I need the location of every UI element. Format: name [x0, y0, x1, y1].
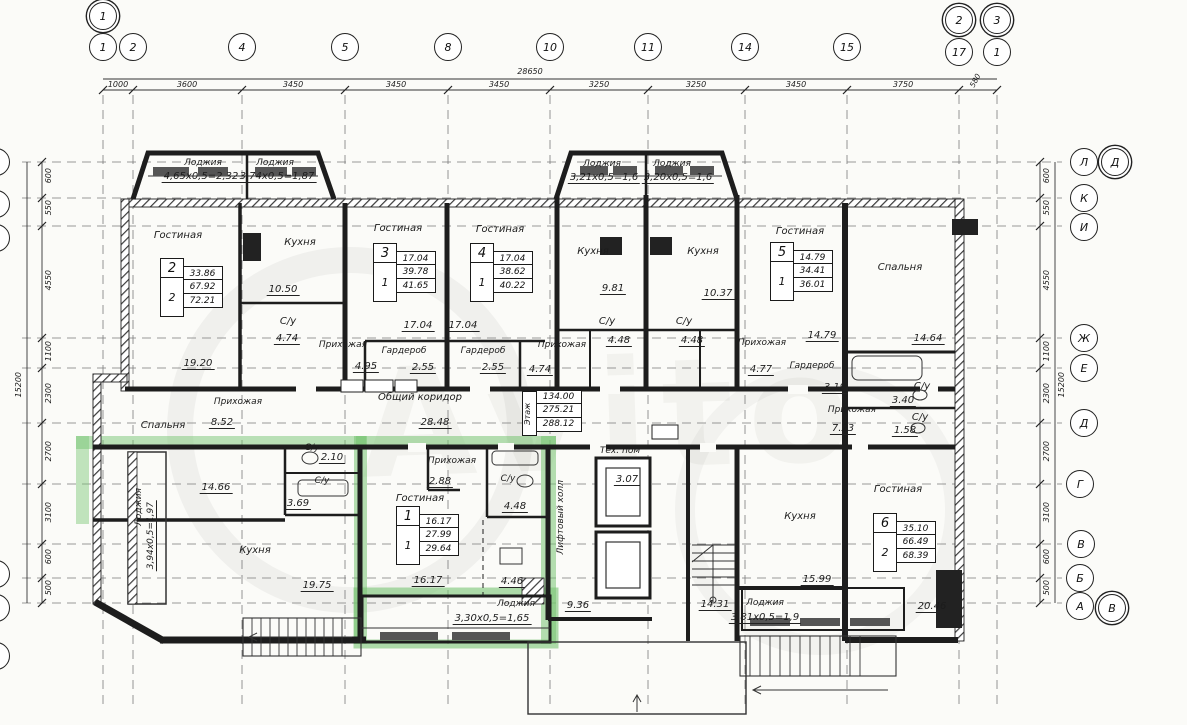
loggia-label: Лоджия — [184, 158, 222, 168]
dim-left: 2700 — [44, 441, 53, 461]
room-area: 14.79 — [806, 330, 839, 342]
axis-bubble: 1 — [983, 38, 1011, 66]
loggia-label: Лоджия — [497, 599, 535, 609]
dim-left: 600 — [44, 168, 53, 183]
room-area: 7.23 — [830, 423, 856, 435]
stamp-apt-number: 1 — [396, 506, 420, 526]
dim-left: 600 — [44, 549, 53, 564]
room-label-living: Гостиная — [374, 223, 422, 234]
room-label-bath: С/у — [501, 474, 516, 484]
loggia-label: Лоджия — [653, 159, 691, 169]
dim-left: 3100 — [44, 502, 53, 522]
loggia-area: 3,21х0,5=1,6 — [568, 172, 640, 184]
dim-right: 4550 — [1042, 270, 1051, 290]
room-label-lift-hall: Лифтовый холл — [556, 480, 566, 555]
room-label-kitchen: Кухня — [239, 545, 271, 556]
room-area: 4.74 — [274, 333, 300, 345]
dim-top-total: 28650 — [517, 67, 542, 76]
room-area: 3.69 — [285, 498, 311, 510]
room-label-kitchen: Кухня — [577, 246, 609, 257]
dim-top: 3450 — [283, 80, 303, 89]
room-label-hall: Прихожая — [828, 405, 876, 415]
axis-bubble-double: Д — [1101, 148, 1129, 176]
room-area: 19.20 — [182, 358, 215, 370]
stamp-apt-number: 3 — [373, 243, 397, 263]
room-label-bath: С/у — [914, 381, 930, 392]
loggia-area: 3,74х0,5=1,87 — [238, 171, 317, 183]
room-label-wardrobe: Гардероб — [790, 361, 835, 371]
stamp-apt-number: 5 — [770, 242, 794, 262]
room-area: 3.40 — [890, 395, 916, 407]
room-area: 2.55 — [480, 362, 506, 374]
dim-right: 2700 — [1042, 441, 1051, 461]
axis-bubble: 4 — [228, 33, 256, 61]
axis-bubble: Г — [1066, 470, 1094, 498]
dim-left: 2300 — [44, 383, 53, 403]
room-area: 2.10 — [319, 452, 345, 464]
room-label-wardrobe: Гардероб — [382, 346, 427, 356]
loggia-area: 4,65х0,5=2,32 — [162, 171, 241, 183]
axis-bubble: 15 — [833, 33, 861, 61]
room-area: 2.55 — [410, 362, 436, 374]
axis-bubble: 14 — [731, 33, 759, 61]
stamp-apt-number: 6 — [873, 513, 897, 533]
stamp-apt-number: 2 — [160, 258, 184, 278]
dim-top: 3750 — [893, 80, 913, 89]
loggia-area: 3,94х0,5=1,97 — [146, 500, 157, 571]
dim-right-total: 15200 — [1057, 372, 1066, 397]
axis-bubble-double: В — [1098, 594, 1126, 622]
floor-plan-page: Avito — [0, 0, 1187, 725]
room-label-bath: С/у — [280, 316, 296, 327]
axis-bubble: 10 — [536, 33, 564, 61]
axis-bubble: Ж — [1070, 324, 1098, 352]
room-label-kitchen: Кухня — [784, 511, 816, 522]
axis-bubble: 17 — [945, 38, 973, 66]
room-area: 20.46 — [916, 601, 949, 613]
room-area: 19.75 — [301, 580, 334, 592]
room-label-living: Гостиная — [776, 226, 824, 237]
dim-right: 2300 — [1042, 383, 1051, 403]
floorplan-drawing — [0, 0, 1187, 725]
room-area: 14.31 — [699, 599, 732, 611]
room-area: 10.37 — [702, 288, 735, 300]
room-area: 4.46 — [499, 576, 525, 588]
stamp-apt-number: 4 — [470, 243, 494, 263]
loggia-label: Лоджия — [746, 598, 784, 608]
room-label-hall: Прихожая — [738, 338, 786, 348]
room-label-bath: С/у — [315, 476, 330, 486]
dim-left: 1100 — [44, 341, 53, 361]
stamp-rooms: 1 — [373, 262, 397, 302]
dim-left: 550 — [44, 200, 53, 215]
floor-area-with-loggias: 288.12 — [536, 417, 582, 432]
axis-bubble: Б — [1066, 564, 1094, 592]
room-area: 8.52 — [209, 417, 235, 429]
room-label-living: Гостиная — [396, 493, 444, 504]
axis-bubble: Л — [1070, 148, 1098, 176]
axis-bubble: Е — [1070, 354, 1098, 382]
dim-left-total: 15200 — [14, 372, 23, 397]
axis-bubble: 11 — [634, 33, 662, 61]
room-area: 4.95 — [353, 361, 379, 373]
room-area: 17.04 — [402, 320, 435, 332]
dim-right: 600 — [1042, 168, 1051, 183]
axis-bubble: 8 — [434, 33, 462, 61]
loggia-area: 3,30х0,5=1,65 — [453, 613, 532, 625]
loggia-area: 3,81х0,5=1,9 — [729, 612, 801, 624]
loggia-label: Лоджия — [256, 158, 294, 168]
axis-bubble-double: 3 — [983, 6, 1011, 34]
stamp-rooms: 2 — [160, 277, 184, 317]
room-area: 9.36 — [565, 600, 591, 612]
room-label-bath: С/у — [305, 443, 320, 453]
room-label-living: Гостиная — [874, 484, 922, 495]
room-label-tech: Тех. пом — [600, 446, 640, 456]
room-label-kitchen: Кухня — [284, 237, 316, 248]
room-area: 16.17 — [412, 575, 445, 587]
axis-bubble: И — [1070, 213, 1098, 241]
room-label-hall: Прихожая — [319, 340, 367, 350]
axis-bubble: Д — [1070, 409, 1098, 437]
room-area: 4.48 — [502, 501, 528, 513]
loggia-area: 3,20х0,5=1,6 — [642, 172, 714, 184]
stamp-rooms: 1 — [396, 525, 420, 565]
dim-top: 3250 — [589, 80, 609, 89]
axis-bubble: В — [1067, 530, 1095, 558]
dim-right: 3100 — [1042, 502, 1051, 522]
room-label-wardrobe: Гардероб — [461, 346, 506, 356]
room-label-hall: Прихожая — [538, 340, 586, 350]
room-label-kitchen: Кухня — [687, 246, 719, 257]
stamp-area-with-loggia: 36.01 — [793, 277, 833, 292]
room-area: 1.58 — [892, 425, 918, 437]
dim-top: 3450 — [386, 80, 406, 89]
room-label-hall: Прихожая — [214, 397, 262, 407]
room-area: 10.50 — [267, 284, 300, 296]
room-area: 15.99 — [801, 574, 834, 586]
room-area: 2.88 — [427, 476, 453, 488]
axis-bubble: К — [1070, 184, 1098, 212]
loggia-label: Лоджия — [134, 488, 144, 526]
room-area: 14.66 — [200, 482, 233, 494]
room-label-bath: С/у — [676, 316, 692, 327]
room-area: 4.77 — [748, 364, 774, 376]
axis-bubble: 1 — [89, 33, 117, 61]
stamp-area-with-loggia: 72.21 — [183, 293, 223, 308]
stamp-area-with-loggia: 29.64 — [419, 541, 459, 556]
dim-right: 600 — [1042, 549, 1051, 564]
room-area: 4.48 — [606, 335, 632, 347]
dim-right: 1100 — [1042, 341, 1051, 361]
dim-top: 3600 — [177, 80, 197, 89]
room-area: 17.04 — [447, 320, 480, 332]
axis-bubble: А — [1066, 592, 1094, 620]
dim-right: 550 — [1042, 200, 1051, 215]
room-area: 3.19 — [822, 382, 848, 394]
axis-bubble-double: 1 — [89, 2, 117, 30]
dim-top: 3450 — [489, 80, 509, 89]
corridor-label: Общий коридор — [378, 392, 462, 403]
dim-top: 3250 — [686, 80, 706, 89]
dim-top: 1000 — [108, 80, 128, 89]
corridor-area: 28.48 — [419, 417, 452, 429]
stamp-rooms: 1 — [770, 261, 794, 301]
room-label-bath: С/у — [912, 412, 928, 423]
room-label-bedroom: Спальня — [878, 262, 923, 273]
stamp-area-with-loggia: 68.39 — [896, 548, 936, 563]
axis-bubble: 2 — [119, 33, 147, 61]
loggia-label: Лоджия — [583, 159, 621, 169]
axis-bubble: 5 — [331, 33, 359, 61]
stamp-rooms: 2 — [873, 532, 897, 572]
stamp-rooms: 1 — [470, 262, 494, 302]
room-area: 3.07 — [614, 474, 640, 486]
dim-right: 500 — [1042, 580, 1051, 595]
room-area: 9.81 — [600, 283, 626, 295]
dim-left: 500 — [44, 580, 53, 595]
room-label-bath: С/у — [599, 316, 615, 327]
room-label-hall: Прихожая — [428, 456, 476, 466]
room-area: 4.48 — [679, 335, 705, 347]
room-label-bedroom: Спальня — [141, 420, 186, 431]
stamp-area-with-loggia: 40.22 — [493, 278, 533, 293]
room-label-living: Гостиная — [154, 230, 202, 241]
room-label-living: Гостиная — [476, 224, 524, 235]
dim-top: 3450 — [786, 80, 806, 89]
room-area: 14.64 — [912, 333, 945, 345]
stamp-area-with-loggia: 41.65 — [396, 278, 436, 293]
axis-bubble-double: 2 — [945, 6, 973, 34]
dim-left: 4550 — [44, 270, 53, 290]
room-area: 4.74 — [527, 364, 553, 376]
